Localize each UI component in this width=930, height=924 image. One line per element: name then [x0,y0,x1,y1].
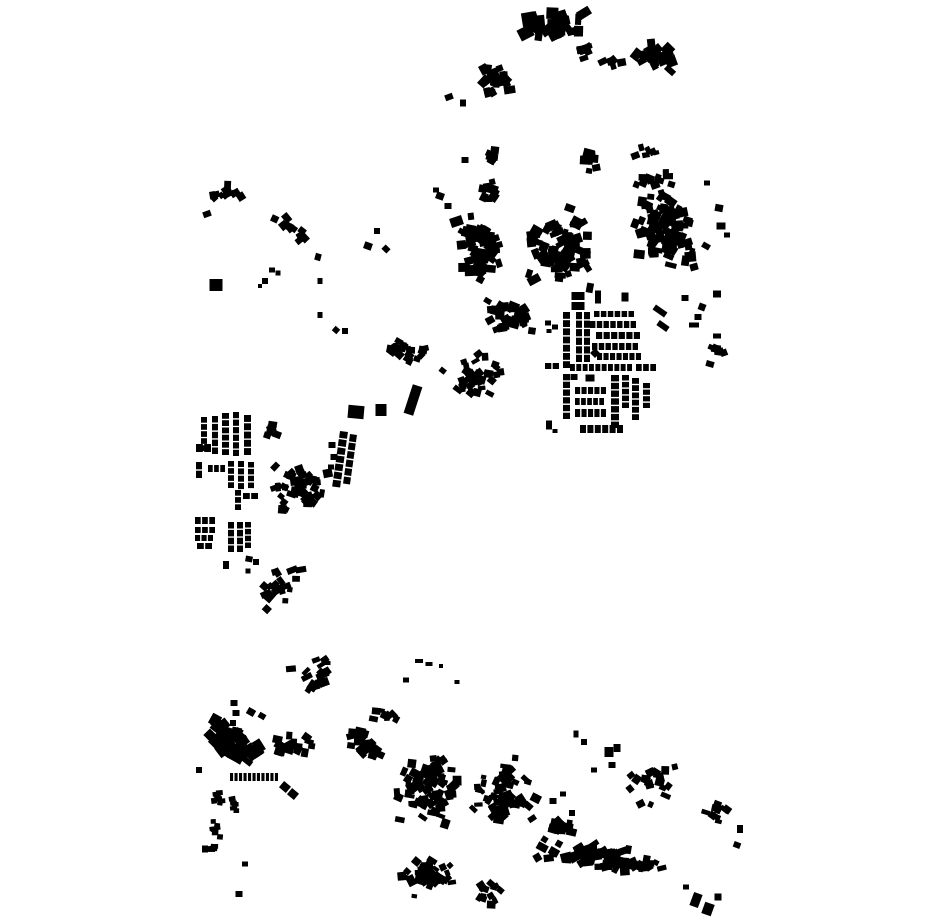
building [211,797,218,804]
building [474,802,483,806]
building [536,841,549,853]
building [695,314,702,320]
building [209,517,215,524]
building [622,382,629,388]
building [682,295,689,301]
building [553,429,558,433]
building [530,792,543,804]
building [197,543,204,549]
building [607,849,615,858]
building [212,416,218,423]
building [622,311,628,317]
building [342,328,348,334]
building [415,659,423,663]
building [596,332,602,339]
building [332,326,340,334]
building [235,490,241,496]
building [586,283,595,294]
building [408,801,417,806]
building [311,656,320,663]
building [623,353,628,360]
building [554,839,563,848]
building [649,250,659,257]
building [418,345,428,354]
building [643,403,650,408]
building [201,445,207,451]
building [245,522,251,528]
building [245,555,253,562]
building [248,462,254,468]
building [270,214,279,223]
building [545,363,551,369]
building [556,24,565,36]
building [248,483,254,489]
building [195,517,201,524]
building [601,387,606,394]
building [689,263,699,272]
building [604,353,609,360]
building [626,332,632,339]
building [438,366,447,374]
building [251,493,258,499]
building [212,829,219,835]
building [449,215,464,228]
building [611,332,617,339]
building [205,543,212,549]
building [233,435,239,441]
building [455,680,460,684]
building [363,241,373,250]
building [233,710,240,716]
building [614,744,621,752]
building [195,535,200,541]
building [563,397,570,403]
building [576,321,582,328]
building [587,425,593,433]
building [348,442,356,450]
building [576,329,582,336]
building [244,440,251,447]
building [439,664,443,668]
building [589,364,594,371]
building [604,332,610,339]
building [426,662,433,666]
building [563,345,570,352]
building [212,424,218,431]
building [553,363,559,369]
building [211,819,216,824]
building [586,168,593,174]
building [733,841,742,849]
building [243,493,250,499]
building [527,814,537,823]
building [222,449,229,455]
building [576,355,582,362]
building [245,529,251,535]
building [643,364,649,371]
building [483,297,492,305]
building [684,251,696,262]
building [257,773,260,781]
building [212,792,219,797]
building [222,442,229,448]
building [641,774,650,781]
building [665,261,677,269]
building [717,223,726,230]
building [611,383,619,389]
building [230,720,236,726]
building [622,396,629,402]
building [219,798,225,803]
building [262,278,268,284]
building [713,291,721,298]
building [485,389,495,397]
building [235,504,241,510]
building [403,678,409,683]
building [548,246,558,254]
building [269,584,279,590]
building [202,210,212,218]
building [608,311,614,317]
building [580,425,586,433]
building [210,844,216,849]
building [222,420,229,426]
building [248,476,254,482]
building [238,483,244,489]
building [583,364,588,371]
building [611,391,619,397]
building [563,320,570,327]
building [647,860,654,867]
building [395,816,405,823]
building [563,312,570,319]
building [571,374,578,380]
building [334,463,343,471]
building [594,387,599,394]
building [640,175,647,180]
building [705,360,714,368]
building [504,85,516,94]
building [228,482,234,488]
building [576,312,582,319]
building [460,100,466,107]
building [528,327,536,335]
building [222,413,229,419]
building [421,862,429,867]
building [631,321,636,328]
building [261,773,264,781]
building [318,312,323,318]
building [242,862,248,867]
building [253,559,259,565]
building [332,480,341,488]
building [487,901,496,909]
building [269,268,275,273]
building [563,413,570,419]
building [622,293,629,302]
building [238,476,244,482]
building [482,353,489,361]
building [657,865,667,872]
building [276,271,281,276]
building [286,732,293,740]
building [329,442,336,448]
building [201,417,207,423]
building [196,767,202,773]
building [594,409,599,417]
building [609,762,616,768]
building [233,427,239,433]
building [201,438,207,444]
building [514,309,521,318]
building [612,858,620,864]
building [601,409,606,417]
building [625,784,634,794]
building [245,543,251,549]
building [654,225,662,234]
building [563,328,570,335]
building [560,792,566,797]
building [433,188,439,193]
building [581,398,586,405]
building [597,57,608,67]
building [480,779,487,787]
building [634,332,640,339]
building [435,191,445,200]
building [319,489,325,498]
building [621,364,626,371]
building [344,468,352,476]
building [595,425,601,433]
building [563,353,570,360]
building [201,431,207,437]
building [394,788,401,796]
building [248,469,254,475]
building [556,821,562,826]
building [594,311,600,317]
building [633,343,638,350]
building [611,398,619,404]
building [275,773,278,781]
building [546,421,552,430]
building [228,546,234,553]
building [619,343,624,350]
building [238,468,244,474]
building [481,774,487,779]
building [304,738,314,745]
building [563,337,570,344]
building [236,891,243,897]
building [570,221,578,227]
building [589,152,596,159]
building [324,661,331,665]
building [715,819,723,825]
building [343,476,351,484]
building [576,338,582,345]
building [643,390,650,395]
building [440,818,451,830]
building [575,398,580,405]
building [647,38,656,48]
building [555,276,564,282]
building [486,196,493,202]
building [244,773,247,781]
building [266,773,269,781]
building [563,374,570,380]
building [612,343,617,350]
building [286,665,296,672]
building [599,343,604,350]
building [593,398,598,405]
building [233,442,239,448]
building [576,364,581,371]
building [604,321,609,328]
building [637,196,647,207]
building [230,773,233,781]
building [663,173,673,179]
building [453,776,462,786]
building [231,700,238,706]
building [650,364,656,371]
building [446,862,453,869]
building [196,471,202,478]
building [471,357,480,365]
building [354,737,361,745]
building [715,348,722,355]
map-canvas [0,0,930,924]
building [636,353,641,360]
building [430,755,438,762]
building [526,230,540,240]
building [318,278,323,284]
building [659,203,669,214]
building [570,364,575,371]
building [660,791,671,800]
building [299,470,305,476]
building [462,157,469,163]
building [610,353,615,360]
building [237,546,243,553]
building [737,825,743,833]
building [584,338,590,345]
building [601,311,607,317]
building [475,369,481,378]
building [333,472,342,480]
building [611,406,619,412]
building [619,859,627,868]
building [418,813,428,822]
building [572,302,585,310]
building [606,343,611,350]
building [490,79,502,86]
building [411,894,417,899]
building [468,213,475,221]
building [331,454,338,460]
building [563,382,570,388]
building [339,431,348,439]
building [608,364,613,371]
building [338,439,347,447]
building [279,781,291,793]
building [597,321,602,328]
building [222,428,229,434]
building [347,451,355,459]
building [614,364,619,371]
building [584,312,590,319]
building [689,892,702,908]
building [235,497,241,503]
building [212,440,218,447]
building [563,361,570,368]
building [595,364,600,371]
building [632,385,639,391]
building [202,527,208,533]
building [584,329,590,336]
building [622,403,629,409]
building [632,407,639,413]
building [632,400,639,406]
building [223,561,229,569]
building [237,522,243,529]
building [576,346,582,353]
building [632,393,639,399]
building [485,315,496,325]
building [312,477,320,486]
building [582,387,587,394]
building [550,798,557,804]
building [611,414,619,420]
building [270,773,273,781]
building [246,707,256,717]
building [258,284,262,288]
building [611,422,619,428]
building [633,249,645,259]
building [328,465,334,470]
building [667,180,676,188]
building [622,389,629,395]
building [493,371,501,379]
building [214,823,220,829]
building [689,323,699,328]
building [233,412,239,418]
building [239,773,242,781]
building [230,800,237,805]
building [591,768,597,773]
building [347,405,364,419]
building [582,409,587,417]
building [605,747,614,757]
building [233,420,239,426]
building [715,894,722,901]
building [611,375,619,381]
building [674,221,684,231]
building [237,530,243,537]
building [566,820,572,826]
building [629,353,634,360]
building [632,378,639,384]
building [374,228,380,234]
building [447,767,455,773]
building [244,448,251,455]
building [202,846,208,853]
building [195,527,201,533]
building [584,355,590,362]
building [545,321,551,326]
building [574,731,579,738]
building [701,902,715,917]
building [235,773,238,781]
building [569,810,575,816]
